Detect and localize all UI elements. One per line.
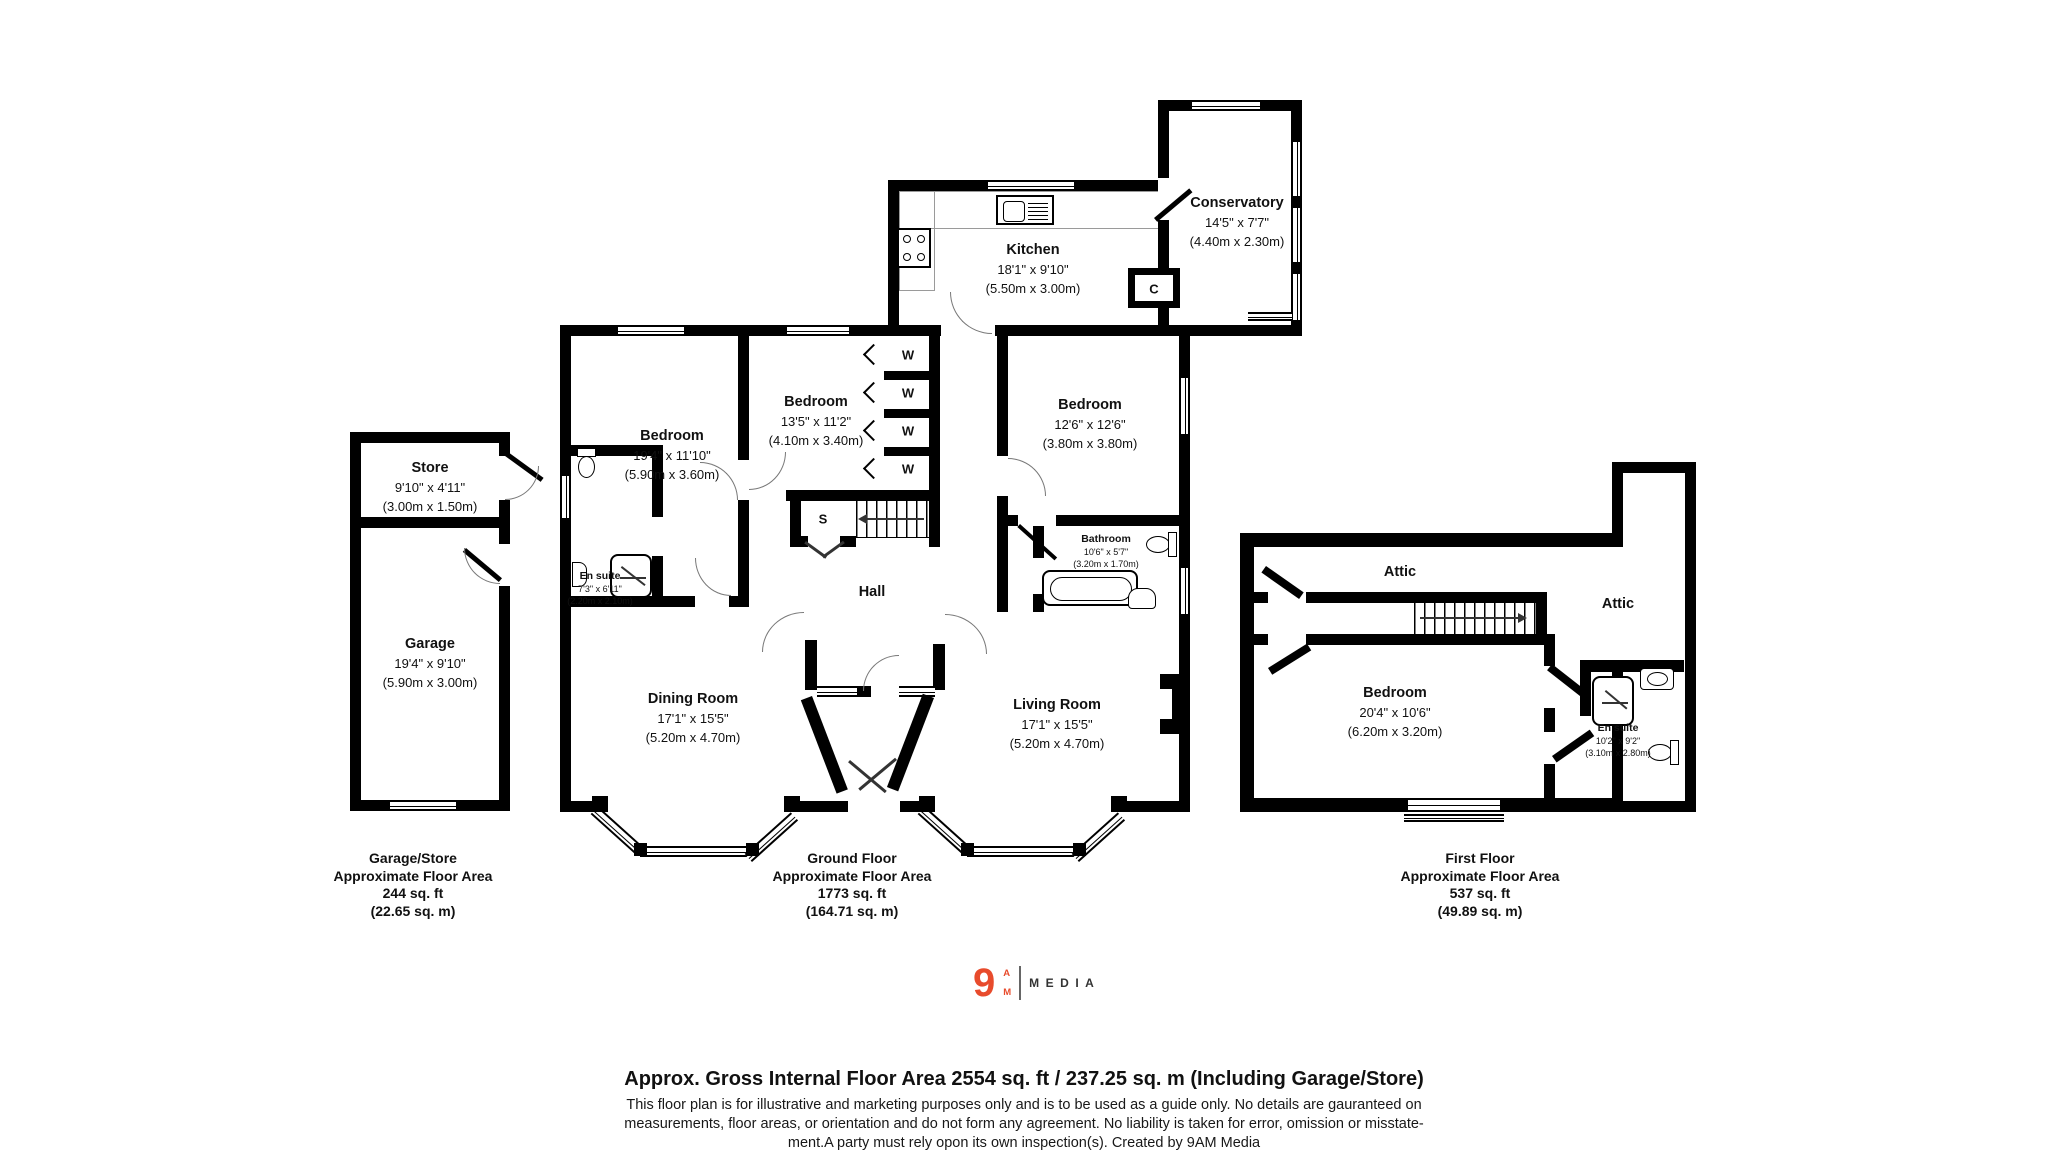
- dining-bay-opening: [600, 799, 790, 813]
- bedroom1-label: Bedroom 19'4" x 11'10" (5.90m x 3.60m): [625, 426, 720, 484]
- wardrobe-label-4: W: [902, 462, 914, 477]
- dining-bay-window: [640, 846, 752, 857]
- ensuite-label: En suite 7'3" x 6'11" (2.20m x 2.10m): [567, 570, 633, 607]
- stairs-ff-arrowhead: [1518, 613, 1527, 623]
- ff-shower-icon: [1592, 676, 1634, 726]
- bedroom2-label: Bedroom 13'5" x 11'2" (4.10m x 3.40m): [769, 392, 864, 450]
- wall-bathroom-top-stub: [1008, 515, 1018, 526]
- ff-bedroom-right-wall-2: [1544, 708, 1555, 732]
- attic-right-label: Attic: [1602, 596, 1634, 612]
- wardrobe-divider-3: [884, 447, 929, 456]
- dining-bay-pier-4: [784, 796, 800, 812]
- bedroom1-window: [618, 325, 684, 336]
- garage-window: [390, 800, 456, 811]
- ff-bedroom-right-wall-3: [1544, 764, 1555, 798]
- living-bay-pier-4: [1111, 796, 1127, 812]
- ff-wall-top: [1240, 533, 1624, 547]
- living-bay-window: [967, 846, 1079, 857]
- ground-floor-caption: Ground Floor Approximate Floor Area 1773…: [773, 850, 932, 920]
- wall-bed3-left-upper: [997, 336, 1008, 456]
- ff-wall-left: [1240, 533, 1254, 812]
- wall-bed1-bottom-right: [729, 596, 749, 607]
- stairs-ff-arrow: [1420, 617, 1520, 619]
- front-door-opening: [848, 799, 900, 813]
- closet-label: C: [1149, 282, 1158, 297]
- ensuite-window: [560, 476, 571, 518]
- ff-stairband-bottom: [1306, 634, 1546, 645]
- wall-hall-living: [933, 644, 945, 690]
- first-floor-caption: First Floor Approximate Floor Area 537 s…: [1401, 850, 1560, 920]
- wardrobe-label-3: W: [902, 424, 914, 439]
- logo-wordmark: MEDIA: [1029, 976, 1100, 990]
- ff-stairband-bottom-stub: [1254, 634, 1268, 645]
- wardrobe-divider-1: [884, 371, 929, 380]
- dining-bay-pier-3: [746, 843, 759, 856]
- s-cupboard-label: S: [819, 512, 828, 527]
- attic-left-label: Attic: [1384, 564, 1416, 580]
- bedroom2-window: [787, 325, 849, 336]
- logo-numeral: 9: [973, 967, 995, 999]
- wall-dining-hall: [805, 640, 817, 690]
- living-bay-pier-1: [919, 796, 935, 812]
- wall-bed2-bottom: [786, 490, 940, 501]
- ff-ensuite-label: En suite 10'2" x 9'2" (3.10m x 2.80m): [1585, 722, 1651, 759]
- ff-bedroom-window-sill: [1404, 814, 1504, 822]
- bathroom-toilet-icon: [1146, 536, 1170, 553]
- porch-sidelight-left: [817, 686, 857, 697]
- living-bay-pier-2: [961, 843, 974, 856]
- ff-ensuite-sink-icon: [1640, 668, 1674, 690]
- kitchen-window: [988, 180, 1074, 191]
- dining-bay-pier-1: [592, 796, 608, 812]
- hob-icon: [897, 228, 931, 268]
- fireplace-inset: [1160, 689, 1172, 719]
- footer-title: Approx. Gross Internal Floor Area 2554 s…: [0, 1068, 2048, 1091]
- floorplan-canvas: Store 9'10" x 4'11" (3.00m x 1.50m) Gara…: [0, 0, 2048, 1152]
- bedroom3-label: Bedroom 12'6" x 12'6" (3.80m x 3.80m): [1043, 395, 1138, 453]
- wardrobe-label-1: W: [902, 348, 914, 363]
- footer-disclaimer: This floor plan is for illustrative and …: [0, 1096, 2048, 1152]
- wall-stairs-right: [929, 490, 940, 547]
- ff-ensuite-toilet-icon: [1648, 744, 1672, 761]
- ff-bedroom-door-leaf: [1268, 644, 1311, 675]
- bathroom-window: [1179, 568, 1190, 614]
- kitchen-sink-icon: [996, 195, 1054, 225]
- ff-ensuite-left-stub: [1580, 660, 1591, 716]
- ff-bedroom-right-wall-1: [1544, 634, 1555, 666]
- wall-ensuite-right-lower: [652, 556, 663, 607]
- wall-bathroom-top: [1056, 515, 1190, 526]
- conservatory-window-right-2: [1291, 208, 1302, 262]
- store-label: Store 9'10" x 4'11" (3.00m x 1.50m): [383, 458, 478, 516]
- dining-label: Dining Room 17'1" x 15'5" (5.20m x 4.70m…: [646, 689, 741, 747]
- ff-ensuite-toilet-tank: [1670, 740, 1679, 765]
- logo-divider: [1019, 966, 1021, 1000]
- conservatory-window-right-1: [1291, 142, 1302, 196]
- garage-store-caption: Garage/Store Approximate Floor Area 244 …: [334, 850, 493, 920]
- bedroom3-window: [1179, 378, 1190, 434]
- living-bay-pier-3: [1073, 843, 1086, 856]
- bathroom-toilet-tank: [1168, 532, 1177, 557]
- wall-bed1-bed2-upper: [738, 336, 749, 460]
- garage-label: Garage 19'4" x 9'10" (5.90m x 3.00m): [383, 634, 478, 692]
- hall-label: Hall: [859, 584, 886, 600]
- bathroom-sink-icon: [1128, 588, 1156, 609]
- bath-icon: [1042, 570, 1138, 606]
- conservatory-window-right-3: [1291, 274, 1302, 320]
- wall-wardrobe-right: [929, 336, 940, 490]
- wall-bed3-left-lower: [997, 496, 1008, 612]
- ff-bedroom-window: [1408, 798, 1500, 812]
- living-label: Living Room 17'1" x 15'5" (5.20m x 4.70m…: [1010, 695, 1105, 753]
- conservatory-sill: [1248, 312, 1292, 321]
- wardrobe-label-2: W: [902, 386, 914, 401]
- stairs-ground-arrowhead: [858, 514, 867, 524]
- ff-bedroom-label: Bedroom 20'4" x 10'6" (6.20m x 3.20m): [1348, 683, 1443, 741]
- ff-stairband-top-stub: [1254, 592, 1268, 603]
- store-door-arc: [505, 466, 539, 500]
- conservatory-window-top: [1192, 100, 1260, 111]
- ff-stairband-top: [1306, 592, 1546, 603]
- wardrobe-divider-2: [884, 409, 929, 418]
- kitchen-label: Kitchen 18'1" x 9'10" (5.50m x 3.00m): [986, 240, 1081, 298]
- 9am-media-logo: 9 A M MEDIA: [973, 966, 1100, 1000]
- bathroom-label: Bathroom 10'6" x 5'7" (3.20m x 1.70m): [1073, 533, 1139, 570]
- dining-bay-pier-2: [634, 843, 647, 856]
- ensuite-toilet-tank: [577, 448, 596, 457]
- wall-bed1-bed2-lower: [738, 500, 749, 607]
- living-bay-opening: [927, 799, 1117, 813]
- logo-am-stack: A M: [1003, 968, 1011, 998]
- stairs-ground-arrow: [866, 518, 924, 520]
- conservatory-label: Conservatory 14'5" x 7'7" (4.40m x 2.30m…: [1190, 193, 1285, 251]
- ensuite-toilet-icon: [578, 456, 595, 478]
